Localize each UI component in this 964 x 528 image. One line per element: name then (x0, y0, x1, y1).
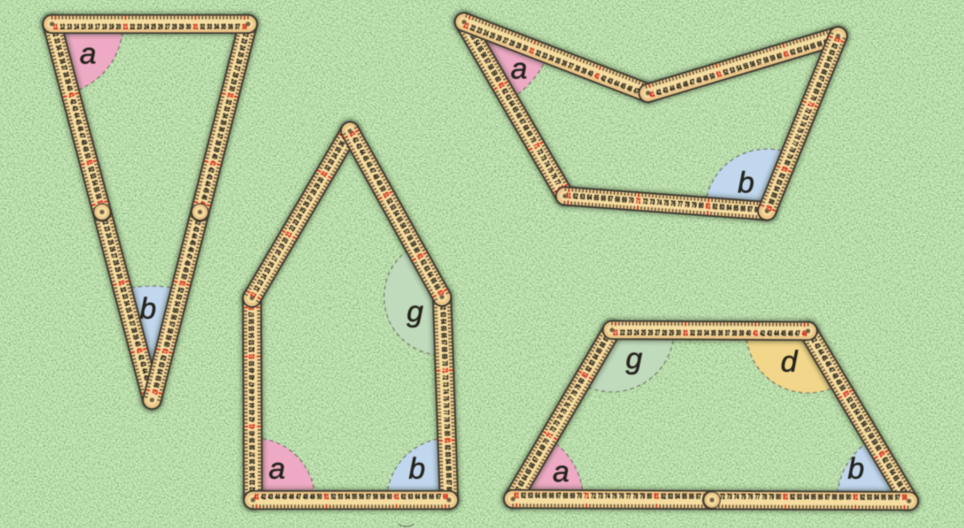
svg-text:36: 36 (228, 23, 233, 31)
svg-text:95: 95 (881, 494, 886, 503)
svg-text:76: 76 (441, 403, 450, 409)
svg-text:23: 23 (627, 329, 632, 338)
svg-text:86: 86 (818, 493, 823, 502)
svg-text:65: 65 (542, 492, 547, 501)
svg-text:86: 86 (689, 493, 694, 502)
svg-text:36: 36 (718, 329, 723, 338)
svg-text:79: 79 (640, 492, 645, 501)
svg-text:61: 61 (394, 493, 399, 501)
svg-text:83: 83 (443, 452, 452, 458)
svg-text:51: 51 (324, 493, 329, 501)
svg-text:g: g (407, 296, 424, 329)
svg-text:75: 75 (441, 396, 450, 402)
svg-text:78: 78 (762, 493, 767, 502)
svg-text:49: 49 (248, 368, 257, 373)
svg-text:50: 50 (317, 493, 322, 501)
svg-text:30: 30 (186, 23, 191, 31)
svg-text:75: 75 (741, 493, 746, 502)
svg-text:96: 96 (888, 494, 893, 503)
svg-text:a: a (511, 53, 528, 86)
svg-text:77: 77 (442, 410, 451, 416)
svg-text:31: 31 (683, 329, 688, 338)
svg-text:52: 52 (331, 493, 336, 501)
svg-text:88: 88 (832, 493, 837, 502)
svg-text:97: 97 (895, 494, 900, 503)
svg-text:77: 77 (755, 493, 760, 502)
svg-text:53: 53 (338, 493, 343, 501)
svg-text:45: 45 (781, 330, 786, 339)
svg-text:78: 78 (633, 492, 638, 501)
svg-text:54: 54 (248, 333, 257, 338)
svg-text:85: 85 (811, 493, 816, 502)
svg-text:a: a (269, 453, 286, 486)
svg-text:27: 27 (655, 329, 660, 338)
svg-text:26: 26 (648, 329, 653, 338)
svg-text:90: 90 (846, 493, 851, 502)
svg-text:12: 12 (60, 23, 65, 31)
svg-text:45: 45 (248, 396, 257, 401)
svg-text:56: 56 (248, 319, 257, 324)
svg-text:80: 80 (776, 493, 781, 502)
svg-text:d: d (781, 346, 799, 379)
svg-text:81: 81 (443, 438, 452, 444)
svg-text:69: 69 (570, 492, 575, 501)
svg-text:74: 74 (441, 389, 450, 395)
svg-text:23: 23 (137, 23, 142, 31)
svg-text:46: 46 (788, 330, 793, 339)
svg-text:31: 31 (193, 23, 198, 31)
svg-text:29: 29 (179, 23, 184, 31)
svg-text:35: 35 (711, 329, 716, 338)
svg-text:64: 64 (439, 319, 448, 325)
svg-text:94: 94 (874, 494, 879, 503)
svg-text:74: 74 (605, 492, 610, 501)
svg-text:22: 22 (620, 329, 625, 338)
svg-text:60: 60 (387, 493, 392, 501)
svg-text:72: 72 (591, 492, 596, 501)
svg-text:65: 65 (439, 326, 448, 332)
svg-text:79: 79 (442, 424, 451, 430)
svg-text:44: 44 (275, 493, 280, 501)
svg-text:42: 42 (261, 493, 266, 501)
svg-text:85: 85 (444, 466, 453, 472)
svg-text:84: 84 (675, 493, 680, 502)
svg-text:32: 32 (690, 329, 695, 338)
svg-text:66: 66 (549, 492, 554, 501)
svg-text:93: 93 (867, 494, 872, 503)
svg-text:76: 76 (619, 492, 624, 501)
svg-text:40: 40 (248, 431, 257, 436)
svg-text:35: 35 (249, 466, 258, 471)
svg-text:73: 73 (598, 492, 603, 501)
svg-text:25: 25 (151, 23, 156, 31)
svg-text:72: 72 (440, 375, 449, 381)
svg-text:30: 30 (676, 329, 681, 338)
svg-text:64: 64 (535, 492, 540, 501)
svg-text:73: 73 (441, 382, 450, 388)
svg-text:73: 73 (727, 493, 732, 502)
svg-text:87: 87 (444, 480, 453, 486)
svg-text:43: 43 (248, 410, 257, 415)
svg-text:36: 36 (249, 459, 258, 464)
svg-text:47: 47 (795, 330, 800, 339)
svg-text:32: 32 (200, 23, 205, 31)
svg-text:80: 80 (442, 431, 451, 437)
svg-text:87: 87 (696, 493, 701, 502)
svg-text:18: 18 (102, 23, 107, 31)
svg-text:68: 68 (439, 347, 448, 353)
svg-text:83: 83 (668, 493, 673, 502)
svg-text:44: 44 (774, 330, 779, 339)
svg-text:14: 14 (74, 23, 79, 31)
svg-text:82: 82 (661, 493, 666, 502)
svg-text:67: 67 (436, 493, 441, 501)
svg-text:65: 65 (422, 493, 427, 501)
svg-text:62: 62 (401, 493, 406, 501)
svg-text:21: 21 (123, 23, 128, 31)
svg-text:33: 33 (249, 480, 258, 485)
svg-text:49: 49 (310, 493, 315, 501)
svg-text:34: 34 (704, 329, 709, 338)
svg-text:33: 33 (697, 329, 702, 338)
svg-text:81: 81 (783, 493, 788, 502)
svg-text:38: 38 (732, 329, 737, 338)
svg-text:42: 42 (760, 330, 765, 339)
svg-text:98: 98 (902, 494, 907, 503)
svg-text:a: a (80, 38, 97, 71)
svg-text:47: 47 (296, 493, 301, 501)
svg-text:40: 40 (746, 329, 751, 338)
svg-text:15: 15 (81, 23, 86, 31)
svg-text:b: b (409, 453, 426, 486)
svg-text:g: g (626, 343, 643, 376)
svg-text:63: 63 (528, 492, 533, 501)
svg-text:75: 75 (612, 492, 617, 501)
svg-text:64: 64 (415, 493, 420, 501)
svg-text:34: 34 (214, 23, 219, 31)
svg-text:67: 67 (439, 340, 448, 346)
svg-text:47: 47 (248, 382, 257, 387)
svg-text:62: 62 (521, 492, 526, 501)
svg-text:37: 37 (235, 23, 240, 31)
svg-text:72: 72 (720, 493, 725, 502)
svg-text:19: 19 (109, 23, 114, 31)
svg-text:33: 33 (207, 23, 212, 31)
svg-text:24: 24 (634, 329, 639, 338)
svg-text:42: 42 (248, 417, 257, 422)
svg-text:77: 77 (626, 492, 631, 501)
svg-text:67: 67 (556, 492, 561, 501)
svg-text:56: 56 (359, 493, 364, 501)
svg-text:28: 28 (662, 329, 667, 338)
svg-text:43: 43 (268, 493, 273, 501)
svg-text:59: 59 (380, 493, 385, 501)
svg-text:87: 87 (825, 493, 830, 502)
svg-text:37: 37 (249, 452, 258, 457)
svg-text:76: 76 (748, 493, 753, 502)
svg-text:57: 57 (248, 312, 257, 317)
svg-text:46: 46 (248, 389, 257, 394)
svg-text:37: 37 (725, 329, 730, 338)
svg-text:b: b (140, 293, 157, 326)
svg-text:84: 84 (443, 459, 452, 465)
svg-text:b: b (738, 167, 755, 200)
svg-text:81: 81 (654, 492, 659, 501)
svg-text:63: 63 (438, 312, 447, 318)
svg-text:57: 57 (366, 493, 371, 501)
svg-text:50: 50 (248, 361, 257, 366)
svg-text:46: 46 (289, 493, 294, 501)
svg-text:39: 39 (739, 329, 744, 338)
svg-text:91: 91 (853, 493, 858, 502)
svg-text:66: 66 (439, 333, 448, 339)
svg-text:41: 41 (248, 424, 257, 429)
svg-text:66: 66 (429, 493, 434, 501)
svg-text:b: b (848, 453, 865, 486)
svg-text:39: 39 (248, 438, 257, 443)
svg-text:16: 16 (88, 23, 93, 31)
svg-text:20: 20 (116, 23, 121, 31)
svg-text:a: a (553, 456, 570, 489)
svg-text:70: 70 (577, 492, 582, 501)
svg-text:55: 55 (352, 493, 357, 501)
svg-text:48: 48 (248, 375, 257, 380)
svg-text:45: 45 (282, 493, 287, 501)
svg-text:53: 53 (248, 340, 257, 345)
svg-text:80: 80 (647, 492, 652, 501)
svg-text:63: 63 (408, 493, 413, 501)
svg-text:55: 55 (248, 326, 257, 331)
svg-text:35: 35 (221, 23, 226, 31)
svg-text:79: 79 (769, 493, 774, 502)
svg-text:34: 34 (249, 473, 258, 478)
svg-text:26: 26 (158, 23, 163, 31)
svg-text:44: 44 (248, 403, 257, 408)
svg-text:22: 22 (130, 23, 135, 31)
svg-text:51: 51 (248, 354, 257, 359)
svg-text:38: 38 (248, 445, 257, 450)
svg-text:70: 70 (440, 361, 449, 367)
svg-text:58: 58 (373, 493, 378, 501)
svg-text:25: 25 (641, 329, 646, 338)
svg-text:17: 17 (95, 23, 100, 31)
svg-text:24: 24 (144, 23, 149, 31)
svg-text:48: 48 (303, 493, 308, 501)
svg-text:69: 69 (440, 354, 449, 360)
svg-text:83: 83 (797, 493, 802, 502)
svg-text:68: 68 (563, 492, 568, 501)
svg-text:74: 74 (734, 493, 739, 502)
svg-text:82: 82 (443, 445, 452, 451)
svg-text:41: 41 (753, 329, 758, 338)
svg-text:28: 28 (172, 23, 177, 31)
svg-text:89: 89 (839, 493, 844, 502)
svg-text:82: 82 (790, 493, 795, 502)
svg-text:54: 54 (345, 493, 350, 501)
svg-text:78: 78 (442, 417, 451, 423)
svg-text:71: 71 (584, 492, 589, 501)
svg-text:13: 13 (67, 23, 72, 31)
svg-text:52: 52 (248, 347, 257, 352)
svg-text:84: 84 (804, 493, 809, 502)
svg-text:86: 86 (444, 473, 453, 479)
svg-text:43: 43 (767, 330, 772, 339)
svg-text:85: 85 (682, 493, 687, 502)
svg-text:27: 27 (165, 23, 170, 31)
svg-text:92: 92 (860, 494, 865, 503)
svg-text:29: 29 (669, 329, 674, 338)
svg-text:71: 71 (440, 368, 449, 374)
